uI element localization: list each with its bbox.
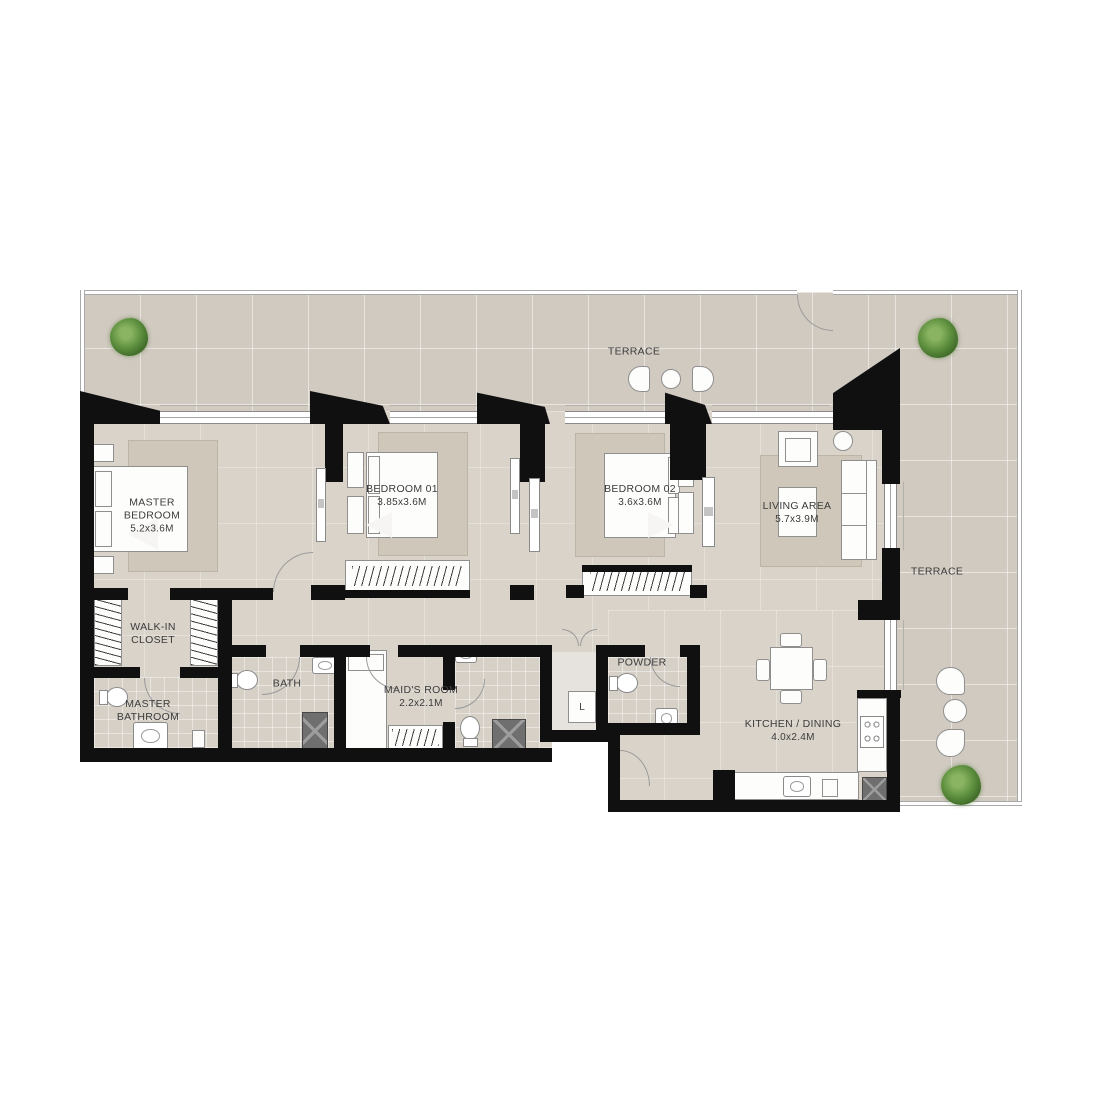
plant — [941, 765, 981, 805]
terrace-chair — [936, 729, 965, 757]
wall-living-east — [882, 548, 900, 620]
dining-chair — [813, 659, 827, 681]
master-nightstand — [92, 444, 114, 462]
wall-kitchen-east — [887, 690, 900, 812]
wall-kitchen-step — [858, 600, 882, 620]
wall-maid-bath-divider — [443, 722, 455, 750]
bedroom01-nightstand — [347, 496, 364, 534]
dining-chair — [756, 659, 770, 681]
plant — [110, 318, 148, 356]
living-side-table — [833, 431, 853, 451]
wall-west — [80, 410, 94, 762]
bedroom02-label: BEDROOM 023.6x3.6M — [604, 483, 676, 509]
maid-bath-shower — [492, 719, 526, 750]
wall-powder-south — [596, 723, 700, 735]
wall-stub — [510, 585, 534, 600]
wall-walkin-divider — [180, 667, 218, 678]
wall-bath-north — [228, 645, 266, 657]
kitchen-dark-unit — [862, 777, 887, 802]
dining-chair — [780, 633, 802, 647]
living-sofa-back — [866, 460, 877, 560]
plant — [918, 318, 958, 358]
walk-in-wardrobe-right — [190, 598, 218, 666]
railing-top-right — [833, 290, 1022, 295]
window — [160, 411, 310, 424]
bath-shower — [302, 712, 328, 750]
window-sill — [160, 405, 308, 406]
terrace-right-label: TERRACE — [911, 566, 963, 579]
sliding-door-panel — [316, 468, 326, 542]
wall-bath-north — [300, 645, 334, 657]
terrace-table — [943, 699, 967, 723]
maids-room-label: MAID'S ROOM2.2x2.1M — [384, 684, 458, 710]
wall-bedroom02-east — [670, 424, 706, 480]
window-sill — [390, 405, 477, 406]
wall-bath-maid-divider — [334, 645, 346, 750]
walk-in-closet-label: WALK-IN CLOSET — [122, 621, 184, 647]
window — [884, 484, 897, 548]
bedroom01-wardrobe-rail — [352, 566, 462, 586]
window — [712, 411, 833, 424]
exterior-cutout — [552, 742, 610, 804]
terrace-chair — [628, 366, 650, 392]
walk-in-wardrobe-left — [94, 598, 122, 666]
dining-table — [770, 647, 813, 690]
bedroom02-wardrobe-rail — [590, 571, 685, 591]
wall-walkin-divider — [94, 667, 140, 678]
master-bed-pillow — [95, 471, 112, 507]
railing-right — [1017, 290, 1022, 806]
wall-entry-step — [713, 770, 735, 802]
kitchen-sink — [783, 776, 811, 797]
wall-kitchen-south — [608, 800, 900, 812]
window-sill — [903, 620, 904, 690]
wall-stub — [566, 585, 584, 598]
maid-bath-toilet — [460, 716, 480, 740]
window — [565, 411, 665, 424]
wall-stub — [311, 585, 345, 600]
sliding-door-panel — [529, 478, 540, 552]
terrace-top-label: TERRACE — [608, 346, 660, 359]
master-bath-sink — [192, 730, 205, 748]
wall-living-east — [882, 424, 900, 484]
master-nightstand — [92, 556, 114, 574]
bedroom01-nightstand — [347, 452, 364, 488]
wall-counter-top — [857, 690, 901, 698]
wall-wardrobe01 — [345, 590, 470, 598]
wall-master-south — [80, 588, 128, 600]
wall-laundry-west — [540, 645, 552, 732]
kitchen-dining-label: KITCHEN / DINING4.0x2.4M — [745, 718, 841, 744]
wall-south — [80, 748, 552, 762]
laundry-box: L — [568, 691, 596, 723]
wall-bedroom01-east — [520, 424, 545, 482]
terrace-chair — [936, 667, 965, 695]
maid-wardrobe-rail — [392, 729, 439, 746]
railing-top-left — [80, 290, 797, 295]
bath-label: BATH — [273, 678, 301, 691]
powder-label: POWDER — [617, 657, 666, 670]
wall-master-south — [170, 588, 273, 600]
powder-toilet — [616, 673, 638, 693]
window — [390, 411, 477, 424]
window-sill — [712, 405, 830, 406]
living-armchair-cushion — [785, 438, 811, 462]
wall-kitchen-west — [608, 730, 620, 812]
wall-maidbath-north — [455, 645, 540, 657]
master-bath-shower — [133, 722, 168, 750]
stove — [860, 716, 884, 748]
wall-wardrobe02 — [582, 565, 692, 572]
wall-laundry-east — [596, 645, 608, 723]
bedroom02-nightstand — [678, 492, 694, 534]
wall-bedroom01-west — [325, 424, 343, 482]
master-bathroom-label: MASTER BATHROOM — [108, 698, 188, 724]
wall-stub — [690, 585, 707, 598]
sliding-door-panel — [702, 477, 715, 547]
laundry-label: L — [579, 702, 585, 713]
floor-plan: L — [0, 0, 1100, 1100]
kitchen-appliance — [822, 779, 838, 797]
bedroom01-label: BEDROOM 013.85x3.6M — [366, 483, 438, 509]
wall-corridor-west — [218, 598, 232, 750]
master-bed-pillow — [95, 511, 112, 547]
living-sofa — [841, 460, 868, 560]
wall-powder-north — [608, 645, 645, 657]
dining-chair — [780, 690, 802, 704]
sliding-door-panel — [510, 458, 520, 534]
wall-powder-east — [687, 657, 700, 723]
living-area-label: LIVING AREA5.7x3.9M — [763, 500, 832, 526]
master-bedroom-label: MASTER BEDROOM5.2x3.6M — [112, 497, 192, 536]
window-sill — [565, 405, 665, 406]
window-sill — [903, 482, 904, 550]
window — [884, 620, 897, 690]
terrace-table — [661, 369, 681, 389]
bath-toilet — [236, 670, 258, 690]
wall-powder-north — [680, 645, 700, 657]
